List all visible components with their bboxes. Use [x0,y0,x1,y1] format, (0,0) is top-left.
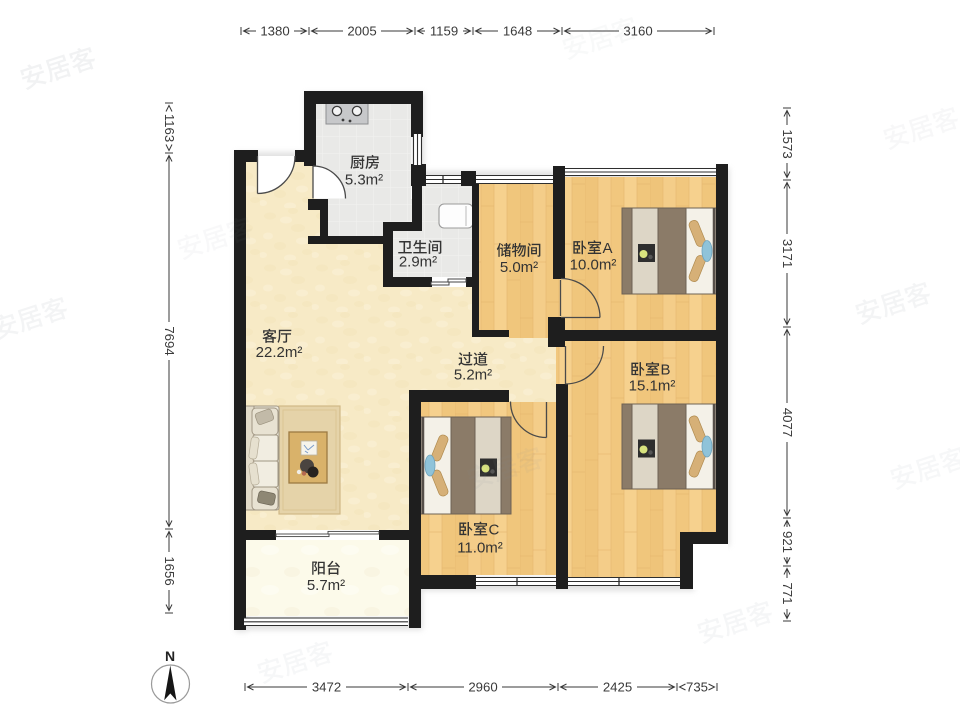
svg-text:5.0m²: 5.0m² [500,259,538,276]
svg-text:2425: 2425 [603,680,632,695]
svg-text:5.2m²: 5.2m² [454,367,492,384]
svg-text:N: N [165,648,175,664]
svg-text:1159: 1159 [430,24,458,39]
svg-text:2960: 2960 [468,680,497,695]
svg-text:22.2m²: 22.2m² [256,344,303,361]
svg-text:1380: 1380 [260,24,289,39]
svg-text:921: 921 [780,531,795,553]
svg-text:B: B [661,361,671,378]
svg-text:7694: 7694 [162,326,177,355]
svg-text:15.1m²: 15.1m² [629,378,676,395]
svg-text:1163: 1163 [162,114,177,142]
svg-text:2.9m²: 2.9m² [399,254,437,271]
svg-text:735: 735 [686,680,708,695]
svg-text:5.3m²: 5.3m² [345,172,383,189]
svg-text:771: 771 [780,582,795,604]
svg-text:10.0m²: 10.0m² [570,257,617,274]
svg-text:C: C [489,521,500,538]
svg-text:A: A [603,240,613,257]
svg-text:1656: 1656 [162,556,177,585]
svg-text:3472: 3472 [312,680,341,695]
svg-text:4077: 4077 [780,408,795,437]
svg-text:2005: 2005 [347,24,376,39]
svg-text:5.7m²: 5.7m² [307,577,345,594]
svg-text:11.0m²: 11.0m² [457,540,503,557]
svg-text:1648: 1648 [503,24,532,39]
svg-text:1573: 1573 [780,129,795,158]
svg-text:3171: 3171 [780,239,795,268]
